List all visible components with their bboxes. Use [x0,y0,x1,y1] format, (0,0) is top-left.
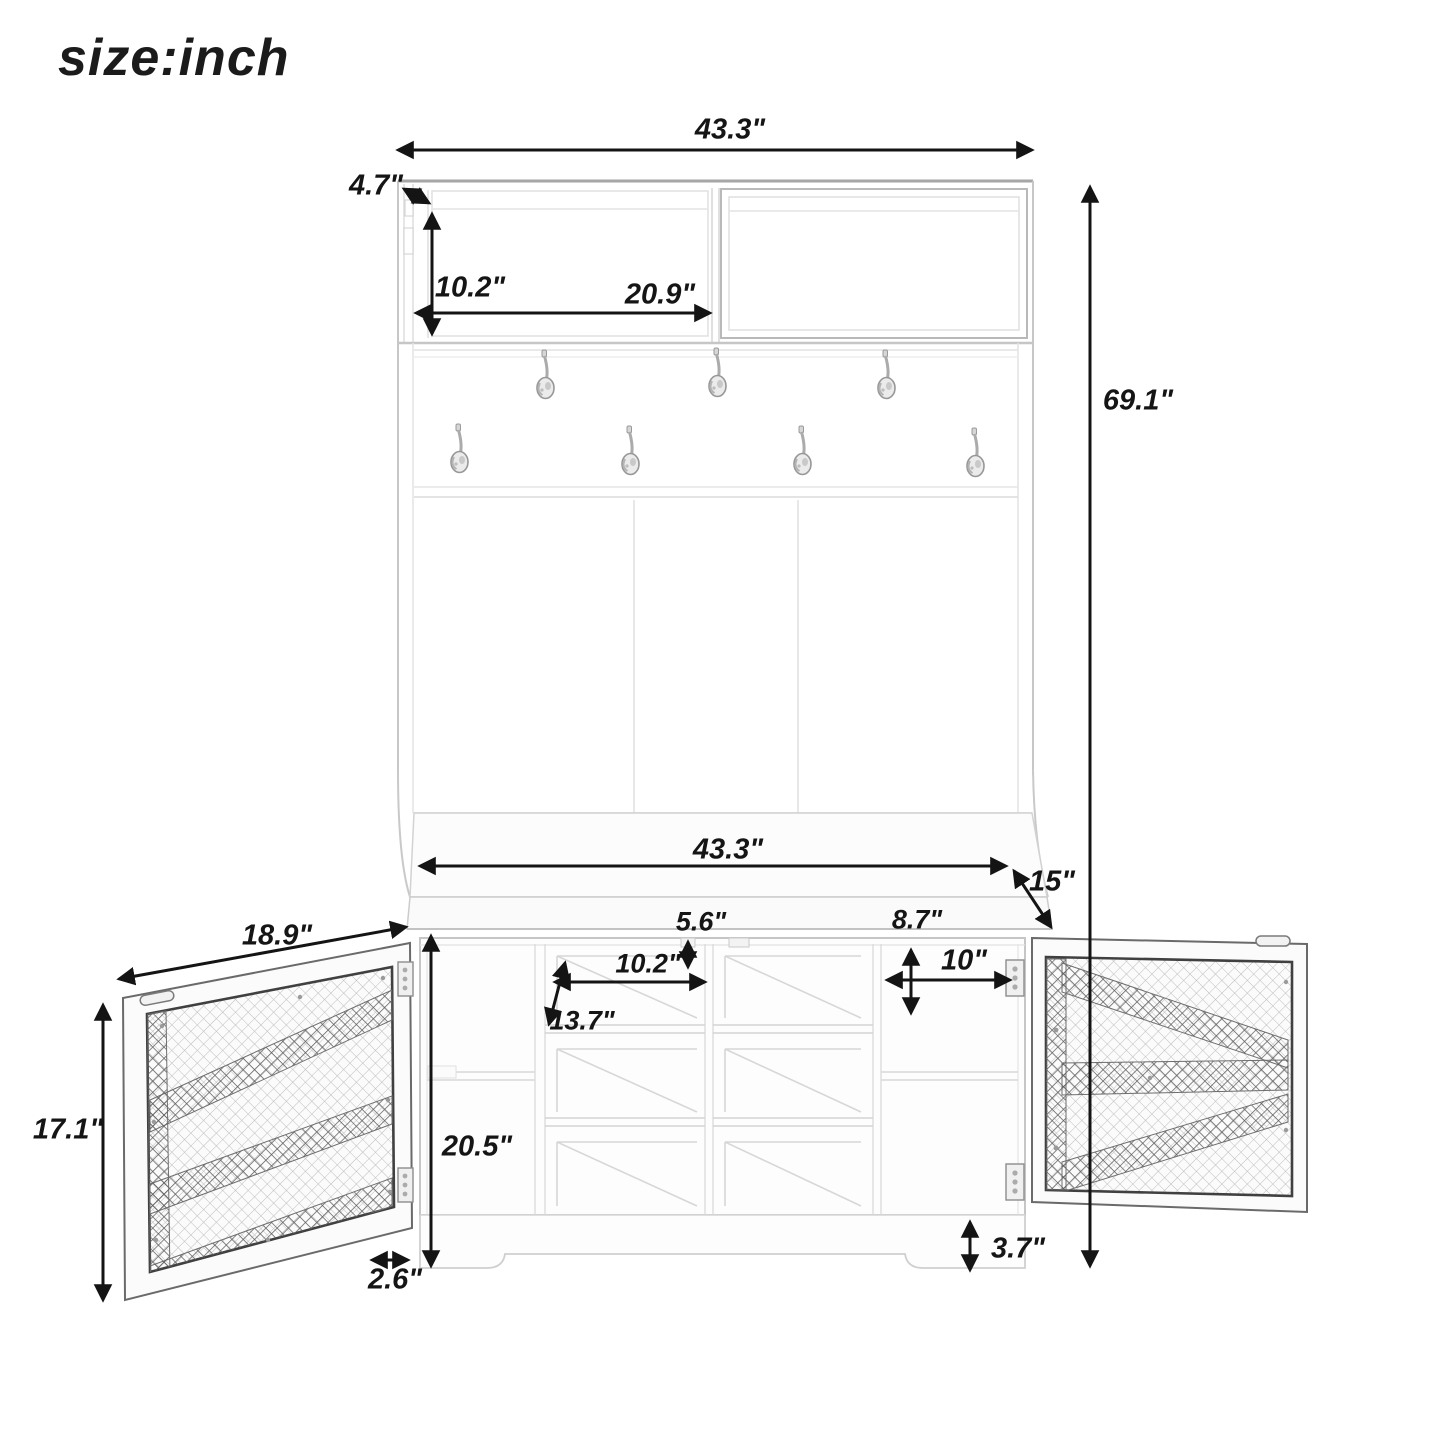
dim-right-cubby-height-label: 8.7" [892,907,942,934]
dim-upper-cubby-height-label: 10.2" [435,274,505,303]
dim-bench-width-label: 43.3" [693,836,763,865]
dim-shoe-cubby-width-label: 10.2" [615,951,680,978]
door-hinge [1006,1164,1024,1200]
dim-base-height-label: 3.7" [991,1235,1045,1264]
dim-top-width-label: 43.3" [695,116,765,145]
coat-hook [967,428,984,477]
top-shelf-unit [398,181,1033,775]
dim-right-cubby-width-label: 10" [941,947,987,976]
size-diagram-canvas: size:inch 43.3" 4.7" 10.2" 20.9" 69.1" 4… [0,0,1445,1445]
dim-overall-height-label: 69.1" [1103,387,1173,416]
door-hinge [398,1168,413,1202]
dim-foot-width-label: 2.6" [368,1266,422,1295]
door-hinge [729,938,749,947]
door-hinge [398,962,413,996]
door-handle [1256,936,1290,946]
plinth-base [420,1215,1025,1268]
coat-hook [794,426,811,475]
right-mesh-door [1006,936,1307,1212]
dim-left-door-height-label: 17.1" [33,1116,103,1145]
dim-upper-cubby-width-label: 20.9" [625,281,695,310]
dim-top-depth-label: 4.7" [349,172,403,201]
dim-shoe-shelf-depth-label: 13.7" [549,1008,614,1035]
dim-left-door-width-label: 18.9" [242,922,312,951]
coat-hook [622,426,639,475]
dim-bench-depth-label: 15" [1029,868,1075,897]
coat-hook [451,424,468,473]
coat-hook [709,348,726,397]
shoe-cabinet [420,938,1025,1268]
furniture-line-art [0,0,1445,1445]
dim-lower-cabinet-height-label: 20.5" [442,1133,512,1162]
door-hinge [1006,960,1024,996]
dim-seat-front-height-label: 5.6" [676,909,726,936]
page-title: size:inch [58,28,290,88]
middle-back-panel [414,500,1032,862]
left-mesh-door [123,943,413,1300]
hook-board [413,343,1018,813]
